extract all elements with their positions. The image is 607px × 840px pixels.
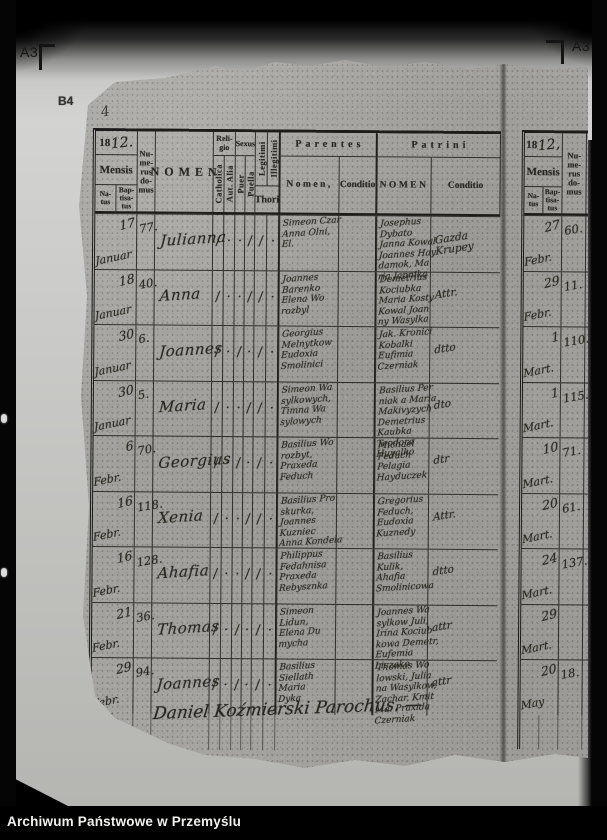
table-row: 17 Januar 77. Julianna / ·	[95, 213, 500, 272]
header-natus: Na- tus	[95, 185, 116, 211]
tally-mark: /	[256, 401, 262, 416]
cell-mark-catholica: /	[210, 548, 221, 603]
header-catholica: Catholica	[213, 156, 224, 212]
entry-house-number: 11.	[563, 276, 583, 293]
entry-month: Januar	[94, 302, 131, 322]
entry-patrini: Thomas Wo lowski, Julia na Wasylkow, Zac…	[374, 659, 441, 726]
entry-day: 17	[119, 214, 136, 233]
tally-mark: /	[244, 567, 250, 582]
tally-mark: ·	[245, 456, 251, 471]
entry-conditio: dtto	[432, 564, 454, 578]
cell-mark-legitimi: /	[252, 604, 264, 659]
cell-mark-puella: /	[242, 548, 252, 603]
tally-mark: ·	[269, 345, 275, 360]
baptism-register-table: 1812. Mensis Na- tus Bap- tisa- tus Nu- …	[88, 128, 501, 752]
tally-mark: ·	[268, 512, 274, 527]
tally-mark: /	[256, 512, 262, 527]
header-illegitimi-label: Illegitimi	[268, 140, 278, 178]
cell-mark-catholica: /	[211, 492, 222, 547]
tally-mark: ·	[225, 400, 231, 415]
table-row: 27 Febr. 60.	[524, 215, 604, 271]
tally-mark: /	[255, 623, 261, 638]
cell-house-number: 115.	[561, 383, 585, 438]
entry-day: 16	[116, 547, 133, 566]
tally-mark: /	[236, 345, 242, 360]
cell-date: 29 Febr.	[523, 272, 561, 327]
cell-mark-puer: ·	[232, 548, 242, 603]
archive-caption-band: Archiwum Państwowe w Przemyślu	[0, 806, 607, 840]
cell-date: 27 Febr.	[524, 216, 562, 271]
cell-parentes: Basilius Pro skurka, Joannes Kuzniec Ann…	[276, 493, 337, 548]
entry-day: 16	[116, 492, 133, 511]
table-body: 17 Januar 77. Julianna / ·	[91, 213, 500, 716]
cell-mark-puer: /	[234, 326, 244, 381]
cell-patrini: Gregorius Feduch, Eudoxia Kuznedy	[373, 494, 429, 549]
cell-mark-puer: ·	[233, 493, 243, 548]
cell-mark-legitimi: /	[254, 326, 266, 381]
frame-label-b4: B4	[58, 94, 73, 108]
entry-month: Febr.	[92, 525, 121, 544]
tally-mark: ·	[235, 511, 241, 526]
tally-mark: ·	[225, 345, 231, 360]
entry-house-number: 94.	[135, 663, 155, 680]
cell-house-number: 94.	[133, 658, 151, 713]
header-religio: Reli- gio	[214, 132, 236, 156]
cell-name: Georgius	[153, 436, 211, 491]
header-puer-label: Puer	[235, 174, 245, 194]
cell-house-number: 5.	[136, 381, 154, 436]
header-year: 1812.	[96, 131, 138, 155]
cell-patrini: Basilius Per niak a Maria Makivyzych Dem…	[374, 383, 430, 438]
cell-mark-aut-alia: ·	[223, 326, 234, 381]
entry-patrini: Jak. Kronici Kobalki Eufimia Czerniak	[377, 326, 443, 372]
archive-name-label: Archiwum Państwowe w Przemyślu	[7, 814, 241, 829]
tally-mark: /	[234, 622, 240, 637]
cell-date: 10 Mart.	[522, 438, 560, 493]
cell-patrini: Demetrius Kociubka Maria Kosty Kowal Joa…	[374, 272, 430, 327]
cell-patrini: Jak. Kronici Kobalki Eufimia Czerniak	[374, 327, 430, 382]
cell-house-number: 71.	[560, 438, 584, 493]
entry-month: Febr.	[92, 636, 121, 655]
tally-mark: ·	[223, 678, 229, 693]
entry-house-number: 70.	[136, 441, 156, 458]
table-row: 16 Febr. 118. Xenia / ·	[93, 491, 498, 550]
tail-line	[539, 715, 558, 749]
cell-parentes: Simeon Lidun, Elena Du mycha	[275, 604, 336, 659]
table-header-right: 1812, Mensis Na- tus Bap- tisa- tus Nu- …	[524, 133, 605, 216]
entry-month: Januar	[94, 358, 131, 378]
entry-name: Ahafia	[157, 561, 210, 582]
tally-mark: /	[235, 456, 241, 471]
tally-mark: ·	[269, 401, 275, 416]
entry-month: Januar	[93, 413, 130, 433]
cell-house-number: 118.	[135, 492, 153, 547]
table-header: 1812. Mensis Na- tus Bap- tisa- tus Nu- …	[95, 131, 501, 216]
cell-date: 1 Mart.	[523, 327, 561, 382]
entry-month: Mart.	[521, 527, 553, 546]
table-row: 21 Febr. 36. Thomas / ·	[92, 602, 497, 661]
cell-mark-puer: ·	[235, 215, 245, 270]
entry-month: Febr.	[92, 581, 121, 600]
cell-name: Maria	[154, 381, 212, 436]
cell-mark-legitimi: /	[255, 215, 267, 270]
cell-mark-aut-alia: ·	[223, 271, 234, 326]
tally-mark: ·	[267, 567, 273, 582]
header-patrini: Patrini	[376, 133, 501, 158]
cell-name-sliver	[585, 272, 599, 327]
entry-house-number: 18.	[560, 665, 580, 682]
cell-mark-puella: ·	[243, 437, 253, 492]
entry-house-number: 61.	[561, 498, 581, 515]
entry-conditio: attr	[432, 675, 452, 689]
cell-name: Thomas	[152, 603, 210, 658]
tally-mark: /	[257, 345, 263, 360]
entry-day: 18	[118, 270, 135, 289]
cell-parentes: Joannes Barenko Elena Wo rozbyl	[277, 271, 338, 326]
header-parentes-nomen: Nomen,	[278, 156, 339, 212]
entry-conditio: dto	[434, 398, 452, 412]
entry-month: May	[520, 694, 545, 712]
cell-parentes: Georgius Melnytkow Eudoxia Smolinici	[277, 326, 338, 381]
tail-line	[558, 715, 582, 749]
tail-blank	[275, 714, 335, 750]
pen-mark: 4	[100, 103, 112, 120]
entry-conditio: Attr.	[435, 287, 458, 301]
cell-house-number: 137.	[559, 549, 583, 604]
cell-house-number: 110.	[561, 327, 585, 382]
cell-parentes: Philippus Fedahnisa Praxeda Rebysznka	[275, 548, 336, 603]
cell-house-number: 18.	[558, 660, 582, 715]
header-patrini-conditio: Conditio	[431, 158, 500, 215]
entry-parentes: Philippus Fedahnisa Praxeda Rebysznka	[279, 547, 353, 594]
entry-patrini: Michael Feduch Pelagia Hayduczek	[377, 437, 443, 483]
entry-parentes: Joannes Barenko Elena Wo rozbyl	[281, 270, 355, 317]
tally-mark: /	[233, 678, 239, 693]
entry-conditio: attr	[432, 620, 452, 634]
corner-wedge	[16, 768, 68, 806]
cell-date: 30 Januar	[94, 381, 136, 436]
entry-parentes: Basilius Pro skurka, Joannes Kuzniec Ann…	[279, 492, 353, 549]
header-aut-alia-label: Aut. Alia	[224, 165, 234, 202]
tally-mark: ·	[226, 234, 232, 249]
tally-mark: /	[245, 401, 251, 416]
frame-label-a3-right: A3	[572, 38, 590, 54]
entry-patrini: Demetrius Kociubka Maria Kosty Kowal Joa…	[378, 271, 444, 328]
entry-day: 1	[550, 384, 560, 401]
cell-mark-legitimi: /	[253, 437, 265, 492]
header-year-right: 1812,	[525, 133, 563, 157]
tally-mark: ·	[267, 623, 273, 638]
entry-house-number: 36.	[135, 608, 155, 625]
cell-date: 20 May	[520, 660, 558, 715]
entry-month: Mart.	[521, 638, 553, 657]
cell-house-number: 60.	[562, 216, 586, 271]
cell-date: 21 Febr.	[92, 603, 134, 658]
registration-bracket-right-icon	[546, 40, 564, 64]
punch-hole	[1, 414, 7, 423]
cell-mark-catholica: /	[212, 270, 223, 325]
cell-house-number: 36.	[134, 603, 152, 658]
header-parentes: Parentes	[279, 132, 377, 157]
tally-mark: /	[257, 290, 263, 305]
tally-mark: /	[255, 567, 261, 582]
tally-mark: ·	[223, 622, 229, 637]
entry-day: 21	[116, 603, 133, 622]
entry-name: Maria	[158, 395, 207, 416]
table-row: 16 Febr. 128. Ahafia / ·	[92, 546, 497, 605]
tail-blank	[335, 714, 372, 750]
tally-mark: /	[246, 290, 252, 305]
entry-month: Febr.	[93, 470, 122, 489]
register-page: 4 1812. Mensis Na- tus Bap- tisa- tus Nu…	[75, 56, 588, 768]
registration-bracket-left-icon	[39, 44, 55, 70]
entry-day: 30	[117, 381, 134, 400]
cell-patrini: Joannes Wa sylkow Juli, Irina Kociub kow…	[372, 605, 428, 660]
cell-mark-puer: /	[232, 604, 242, 659]
entry-parentes: Simeon Wa sylkowych, Timna Wa sylowych	[280, 381, 354, 428]
tally-mark: ·	[270, 234, 276, 249]
entry-month: Febr.	[524, 250, 553, 269]
cell-mark-aut-alia: ·	[221, 548, 232, 603]
tally-mark: /	[245, 512, 251, 527]
header-baptisatus: Bap- tisa- tus	[116, 185, 137, 211]
cell-house-number: 40.	[136, 270, 154, 325]
cell-mark-catholica: /	[212, 381, 223, 436]
header-aut-alia: Aut. Alia	[224, 156, 235, 212]
year-handwritten: 12.	[111, 134, 135, 152]
tally-mark: /	[247, 234, 253, 249]
header-legitimi: Legitimi	[256, 132, 268, 186]
cell-date: 24 Mart.	[521, 549, 559, 604]
tally-mark: ·	[243, 678, 249, 693]
header-puer: Puer	[235, 156, 245, 212]
tally-mark: /	[254, 678, 260, 693]
entry-day: 1	[551, 328, 561, 345]
cell-mark-puella: /	[244, 271, 254, 326]
microfilm-frame: A3 A3 B4 4 1812. Mensis Na- tus Bap- tis…	[0, 0, 607, 840]
table-row: 6 Febr. 70. Georgius / ·	[93, 435, 498, 494]
header-mensis: Mensis	[96, 155, 138, 185]
tally-mark: /	[215, 289, 221, 304]
entry-patrini: Basilius Kulik, Ahafia Smolinicowa	[376, 548, 442, 594]
cell-mark-aut-alia: ·	[222, 493, 233, 548]
punch-hole	[1, 568, 7, 577]
entry-parentes: Basilius Wo rozbyt, Praxeda Feduch	[280, 436, 354, 483]
year-printed: 18	[526, 139, 537, 151]
cell-mark-aut-alia: ·	[221, 604, 232, 659]
cell-parentes: Simeon Czar Anna Olni, El.	[278, 215, 339, 270]
entry-month: Mart.	[523, 361, 555, 380]
cell-date: 20 Mart.	[522, 494, 560, 549]
cell-mark-puella: /	[245, 215, 255, 270]
entry-house-number: 6.	[137, 331, 150, 347]
cell-house-number: 70.	[135, 436, 153, 491]
header-parentes-conditio: Conditio	[339, 157, 376, 213]
cell-mark-legitimi: /	[253, 493, 265, 548]
cell-patrini: Michael Feduch Pelagia Hayduczek	[373, 438, 429, 493]
entry-name: Xenia	[157, 506, 203, 527]
cell-mark-puella: /	[243, 493, 253, 548]
table-row: 18 Januar 40. Anna / ·	[94, 269, 499, 328]
header-puella-label: Puella	[245, 171, 255, 197]
entry-month: Januar	[95, 247, 132, 267]
tally-mark: /	[214, 400, 220, 415]
entry-day: 30	[118, 325, 135, 344]
cell-date: 17 Januar	[95, 214, 137, 269]
tally-mark: ·	[246, 345, 252, 360]
cell-mark-puella: ·	[244, 326, 254, 381]
header-thori: Thori	[255, 186, 279, 212]
entry-day: 20	[540, 660, 557, 679]
cell-parentes: Simeon Wa sylkowych, Timna Wa sylowych	[277, 382, 338, 437]
header-catholica-label: Catholica	[213, 164, 223, 204]
cell-mark-puer: ·	[234, 382, 244, 437]
cell-house-number	[559, 605, 583, 660]
tail-line	[520, 715, 539, 749]
tally-mark: /	[213, 567, 219, 582]
entry-day: 20	[541, 494, 558, 513]
entry-day: 6	[125, 437, 135, 454]
entry-house-number: 71.	[561, 443, 581, 460]
header-numerus-domus-right: Nu- me- rus do- mus	[562, 133, 587, 213]
cell-mark-aut-alia: ·	[223, 382, 234, 437]
cell-mark-puella: /	[244, 382, 254, 437]
cell-mark-legitimi: /	[252, 548, 264, 603]
cell-date: 6 Febr.	[93, 436, 135, 491]
entry-month: Mart.	[522, 472, 554, 491]
cell-name: Joannes	[154, 325, 212, 380]
entry-month: Mart.	[522, 416, 554, 435]
cell-name: Julianna	[155, 214, 213, 269]
entry-day: 29	[541, 605, 558, 624]
tally-mark: ·	[224, 567, 230, 582]
cell-date: 29 Mart.	[521, 605, 559, 660]
entry-conditio: dtr	[433, 454, 449, 467]
cell-patrini: Josephus Dybato Janna Kowal Joannes Hay …	[375, 216, 431, 271]
entry-parentes: Simeon Czar Anna Olni, El.	[282, 214, 355, 250]
entry-name: Anna	[159, 284, 201, 305]
header-sexus: Sexus	[236, 132, 256, 156]
cell-patrini: Basilius Kulik, Ahafia Smolinicowa	[372, 549, 428, 604]
entry-day: 29	[543, 272, 560, 291]
tally-mark: ·	[236, 400, 242, 415]
cell-house-number: 11.	[561, 272, 585, 327]
tally-mark: ·	[237, 234, 243, 249]
entry-name: Thomas	[157, 616, 221, 638]
year-printed: 18	[99, 137, 110, 149]
tally-mark: ·	[269, 290, 275, 305]
tally-mark: ·	[244, 623, 250, 638]
header-legitimi-label: Legitimi	[256, 141, 266, 176]
cell-date: 18 Januar	[94, 270, 136, 325]
cell-parentes: Basilius Wo rozbyt, Praxeda Feduch	[276, 437, 337, 492]
cell-date: 16 Febr.	[93, 492, 135, 547]
entry-house-number: 77.	[138, 219, 158, 236]
tally-mark: /	[256, 456, 262, 471]
tally-mark: ·	[266, 678, 272, 693]
year-handwritten: 12,	[538, 136, 562, 154]
header-mensis-right: Mensis	[525, 157, 563, 187]
tally-mark: ·	[234, 567, 240, 582]
cell-mark-puer: /	[233, 437, 243, 492]
cell-mark-legitimi: /	[254, 382, 266, 437]
header-natus-right: Na- tus	[524, 187, 543, 213]
header-patrini-nomen: NOMEN	[375, 157, 431, 213]
entry-day: 29	[115, 658, 132, 677]
tally-mark: ·	[226, 289, 232, 304]
tally-mark: ·	[224, 511, 230, 526]
tally-mark: /	[258, 234, 264, 249]
header-baptisatus-right: Bap- tisa- tus	[543, 187, 562, 213]
entry-parentes: Georgius Melnytkow Eudoxia Smolinici	[280, 325, 354, 372]
frame-label-a3-left: A3	[20, 44, 38, 60]
tally-mark: ·	[268, 456, 274, 471]
cell-house-number: 6.	[136, 325, 154, 380]
cell-mark-legitimi: /	[254, 271, 266, 326]
entry-month: Febr.	[523, 305, 552, 324]
entry-day: 10	[542, 438, 559, 457]
cell-house-number: 61.	[560, 494, 584, 549]
cell-name: Anna	[154, 270, 212, 325]
table-row: 30 Januar 5. Maria / ·	[94, 380, 499, 439]
entry-patrini: Gregorius Feduch, Eudoxia Kuznedy	[376, 493, 442, 539]
entry-conditio: dtto	[434, 342, 456, 356]
cell-house-number: 128.	[134, 547, 152, 602]
entry-parentes: Simeon Lidun, Elena Du mycha	[278, 603, 352, 650]
cell-house-number: 77.	[137, 214, 155, 269]
cell-date: 16 Febr.	[92, 547, 134, 602]
tally-mark: ·	[236, 289, 242, 304]
cell-mark-puer: ·	[234, 271, 244, 326]
entry-month: Mart.	[521, 583, 553, 602]
cell-mark-puella: ·	[242, 604, 252, 659]
entry-conditio: Attr.	[433, 509, 456, 523]
entry-house-number: 40.	[138, 275, 158, 292]
table-row: 30 Januar 6. Joannes / ·	[94, 324, 499, 383]
cell-date: 1 Mart.	[523, 383, 561, 438]
cell-date: 30 Januar	[94, 325, 136, 380]
entry-day: 27	[544, 216, 561, 235]
entry-house-number: 60.	[563, 221, 583, 238]
entry-day: 24	[541, 549, 558, 568]
tally-mark: /	[213, 511, 219, 526]
header-nomen: NOMEN	[155, 131, 214, 211]
entry-house-number: 5.	[137, 386, 150, 402]
entry-conditio: Gazda Krupey	[435, 230, 474, 258]
